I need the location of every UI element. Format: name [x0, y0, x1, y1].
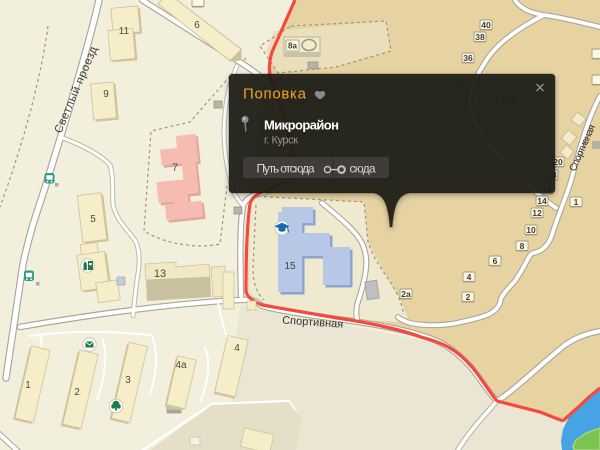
svg-text:40: 40 — [481, 20, 491, 30]
svg-text:Поповка: Поповка — [243, 86, 307, 103]
svg-text:Путь отсюда: Путь отсюда — [257, 162, 315, 176]
svg-text:6: 6 — [194, 20, 200, 31]
svg-text:36: 36 — [463, 53, 473, 63]
svg-text:2а: 2а — [401, 289, 411, 299]
svg-text:4: 4 — [234, 343, 240, 354]
svg-text:2: 2 — [74, 387, 80, 398]
svg-text:7: 7 — [172, 162, 178, 174]
svg-text:2: 2 — [466, 292, 471, 302]
svg-text:8: 8 — [520, 241, 525, 251]
svg-text:13: 13 — [154, 268, 166, 280]
svg-text:Микрорайон: Микрорайон — [264, 118, 339, 133]
svg-text:5: 5 — [90, 214, 96, 225]
svg-text:3: 3 — [125, 375, 131, 386]
svg-text:г. Курск: г. Курск — [264, 135, 298, 147]
svg-text:1: 1 — [25, 380, 31, 391]
svg-text:8а: 8а — [288, 42, 297, 51]
svg-text:38: 38 — [475, 32, 485, 42]
svg-text:10: 10 — [526, 225, 536, 235]
svg-text:12: 12 — [532, 208, 542, 218]
svg-text:4а: 4а — [175, 360, 187, 371]
svg-text:6: 6 — [493, 256, 498, 266]
svg-text:сюда: сюда — [350, 162, 376, 176]
svg-text:14: 14 — [537, 196, 547, 206]
svg-text:1: 1 — [574, 197, 579, 207]
svg-text:4: 4 — [467, 272, 472, 282]
svg-text:9: 9 — [103, 89, 109, 100]
svg-text:11: 11 — [119, 26, 130, 37]
svg-text:15: 15 — [284, 261, 296, 272]
